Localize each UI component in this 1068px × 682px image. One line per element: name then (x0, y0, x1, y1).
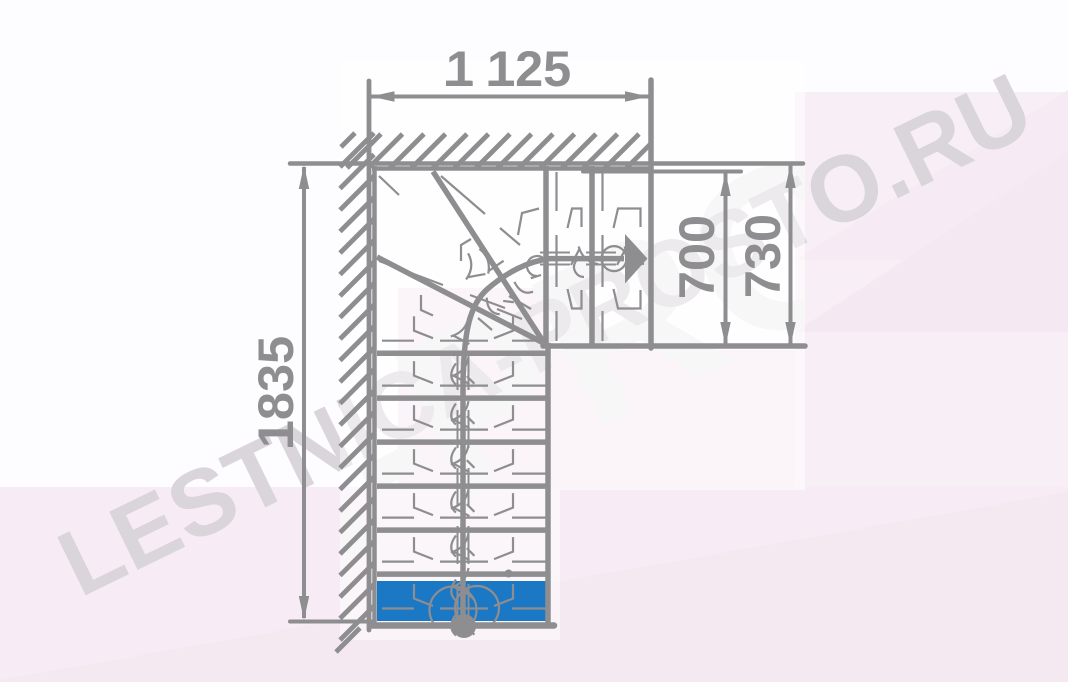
svg-text:1: 1 (446, 40, 474, 97)
svg-text:700: 700 (668, 215, 725, 299)
svg-text:125: 125 (487, 40, 571, 97)
svg-text:1835: 1835 (247, 336, 304, 448)
svg-text:730: 730 (734, 214, 791, 298)
